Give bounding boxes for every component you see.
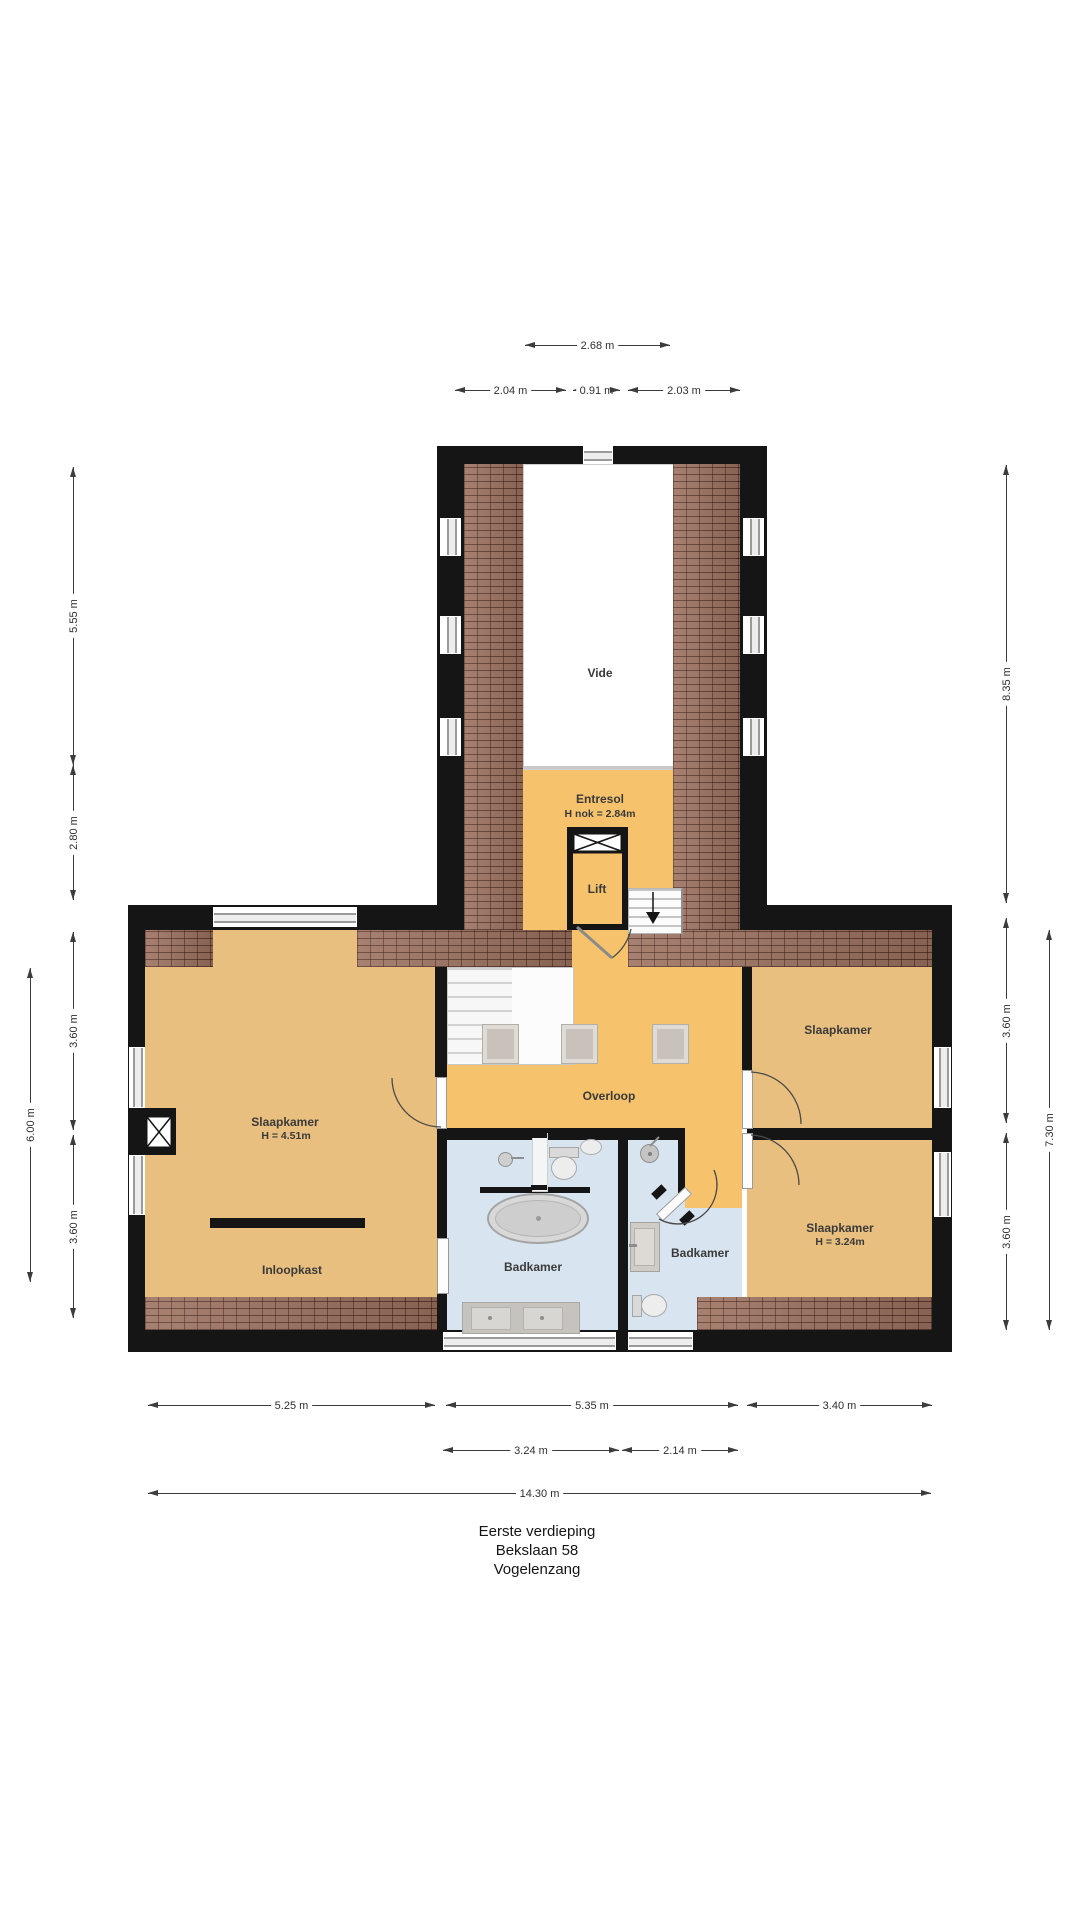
wall-corridor-badkamer	[678, 1140, 685, 1193]
shower-head-dot	[648, 1152, 652, 1156]
dim-bottom-340: 3.40 m	[747, 1405, 932, 1406]
room-vide-floor	[523, 464, 675, 770]
closet-bar	[210, 1218, 365, 1228]
window-wing-left-1	[440, 518, 461, 556]
dim-label: 2.14 m	[659, 1445, 701, 1457]
roof-tiles-top-band-1	[145, 930, 213, 967]
window-main-bottom-1	[443, 1332, 616, 1350]
dim-label: 7.30 m	[1044, 1108, 1056, 1152]
dim-bottom-535: 5.35 m	[446, 1405, 738, 1406]
window-main-top	[213, 907, 357, 927]
faucet-icon	[498, 1152, 513, 1167]
window-wing-right-3	[743, 718, 764, 756]
toilet-main-bowl	[551, 1156, 577, 1180]
dim-left-360a: 3.60 m	[73, 932, 74, 1130]
dim-right-360a: 3.60 m	[1006, 918, 1007, 1123]
label-inloopkast: Inloopkast	[262, 1263, 322, 1277]
dim-bottom-1430: 14.30 m	[148, 1493, 931, 1494]
washbasin-basin	[634, 1228, 655, 1266]
sink-main-small	[580, 1139, 602, 1155]
vanity-drain-1	[488, 1316, 492, 1320]
wall-overloop-left-stub	[435, 967, 447, 1077]
vanity	[462, 1302, 580, 1334]
dim-label: 3.40 m	[819, 1400, 861, 1412]
wall-right-rooms-divider	[747, 1128, 932, 1140]
dim-label: 2.04 m	[490, 385, 532, 397]
washbasin-tap	[629, 1244, 637, 1247]
dim-right-360b: 3.60 m	[1006, 1133, 1007, 1330]
label-slaapkamer-bottomright-height: H = 3.24m	[815, 1236, 864, 1248]
label-slaapkamer-left: Slaapkamer	[251, 1115, 318, 1129]
dim-label: 3.24 m	[510, 1445, 552, 1457]
dim-bottom-525: 5.25 m	[148, 1405, 435, 1406]
roof-tiles-wing-right	[673, 464, 740, 930]
label-badkamer-small: Badkamer	[671, 1246, 729, 1260]
dim-label: 3.60 m	[68, 1205, 80, 1249]
label-slaapkamer-left-height: H = 4.51m	[261, 1130, 310, 1142]
dim-label: 3.60 m	[68, 1009, 80, 1053]
door-leaf-slaapkamer-bottomright	[742, 1133, 753, 1189]
dim-label: 5.35 m	[571, 1400, 613, 1412]
dim-top-204: 2.04 m	[455, 390, 566, 391]
skylight-1	[483, 1025, 518, 1063]
dim-label: 0.91 m	[576, 385, 618, 397]
wall-overloop-right-stub	[742, 967, 752, 1070]
title-block: Eerste verdieping Bekslaan 58 Vogelenzan…	[479, 1522, 596, 1579]
label-slaapkamer-topright: Slaapkamer	[804, 1023, 871, 1037]
title-floor: Eerste verdieping	[479, 1522, 596, 1541]
label-lift: Lift	[588, 882, 607, 896]
shaft-surround	[128, 1108, 176, 1155]
window-main-right-1	[934, 1047, 951, 1108]
window-wing-left-2	[440, 616, 461, 654]
dim-label: 2.80 m	[68, 811, 80, 855]
corridor-floor	[685, 1128, 742, 1208]
label-entresol-height: H nok = 2.84m	[565, 808, 636, 820]
dim-top-268: 2.68 m	[525, 345, 670, 346]
lift-shaft	[567, 827, 628, 930]
shower-partition-cap-top	[531, 1133, 547, 1138]
wall-badkamer-left	[437, 1140, 447, 1330]
window-wing-left-3	[440, 718, 461, 756]
window-main-bottom-2	[628, 1332, 693, 1350]
roof-tiles-bottom-band-1	[145, 1297, 437, 1330]
dim-label: 5.55 m	[68, 594, 80, 638]
dim-label: 8.35 m	[1001, 662, 1013, 706]
toilet-small-bowl	[641, 1294, 667, 1317]
dim-left-360b: 3.60 m	[73, 1135, 74, 1318]
window-wing-right-1	[743, 518, 764, 556]
floorplan-canvas: Vide Entresol H nok = 2.84m Lift Overloo…	[0, 0, 1080, 1920]
dim-label: 3.60 m	[1001, 999, 1013, 1043]
wall-right-pillar	[932, 1108, 952, 1152]
dim-bottom-214: 2.14 m	[622, 1450, 738, 1451]
stairs-upper	[628, 888, 683, 934]
dim-left-555: 5.55 m	[73, 467, 74, 765]
door-leaf-inloopkast-badkamer	[437, 1238, 449, 1294]
window-main-left-2	[129, 1155, 145, 1215]
dim-right-730: 7.30 m	[1049, 930, 1050, 1330]
roof-tiles-top-band-3	[628, 930, 932, 967]
skylight-2	[562, 1025, 597, 1063]
washbasin-small	[630, 1222, 660, 1272]
shower-partition-cap-bottom	[531, 1185, 547, 1190]
dim-label: 3.60 m	[1001, 1210, 1013, 1254]
dim-label: 14.30 m	[516, 1488, 564, 1500]
door-leaf-slaapkamer-left	[436, 1077, 447, 1129]
title-city: Vogelenzang	[479, 1560, 596, 1579]
label-overloop: Overloop	[583, 1089, 636, 1103]
vanity-drain-2	[540, 1316, 544, 1320]
dim-top-091: 0.91 m	[573, 390, 620, 391]
dim-top-203: 2.03 m	[628, 390, 740, 391]
wall-badkamer-top-2	[628, 1128, 685, 1140]
dim-label: 2.03 m	[663, 385, 705, 397]
dim-label: 2.68 m	[577, 340, 619, 352]
wall-between-badkamers	[618, 1140, 628, 1330]
door-leaf-slaapkamer-topright	[742, 1070, 753, 1129]
label-slaapkamer-bottomright: Slaapkamer	[806, 1221, 873, 1235]
bathtub	[487, 1193, 589, 1244]
window-main-right-2	[934, 1152, 951, 1217]
dim-left-280: 2.80 m	[73, 765, 74, 900]
roof-tiles-top-band-2	[357, 930, 572, 967]
roof-tiles-wing-left	[464, 464, 523, 930]
window-wing-right-2	[743, 616, 764, 654]
dim-bottom-324: 3.24 m	[443, 1450, 619, 1451]
bathtub-drain	[536, 1216, 541, 1221]
window-main-left-1	[129, 1047, 145, 1108]
dim-label: 5.25 m	[271, 1400, 313, 1412]
label-entresol: Entresol	[576, 792, 624, 806]
title-address: Bekslaan 58	[479, 1541, 596, 1560]
entresol-edge-line	[523, 766, 673, 769]
label-vide: Vide	[587, 666, 612, 680]
wall-main-top-right	[767, 905, 952, 930]
dim-right-835: 8.35 m	[1006, 465, 1007, 903]
skylight-3	[653, 1025, 688, 1063]
shower-head	[640, 1144, 659, 1163]
dim-left-600: 6.00 m	[30, 968, 31, 1282]
label-badkamer-main: Badkamer	[504, 1260, 562, 1274]
dim-label: 6.00 m	[25, 1103, 37, 1147]
shower-partition	[532, 1133, 548, 1192]
window-wing-top	[583, 446, 613, 464]
roof-tiles-bottom-band-2	[697, 1297, 932, 1330]
